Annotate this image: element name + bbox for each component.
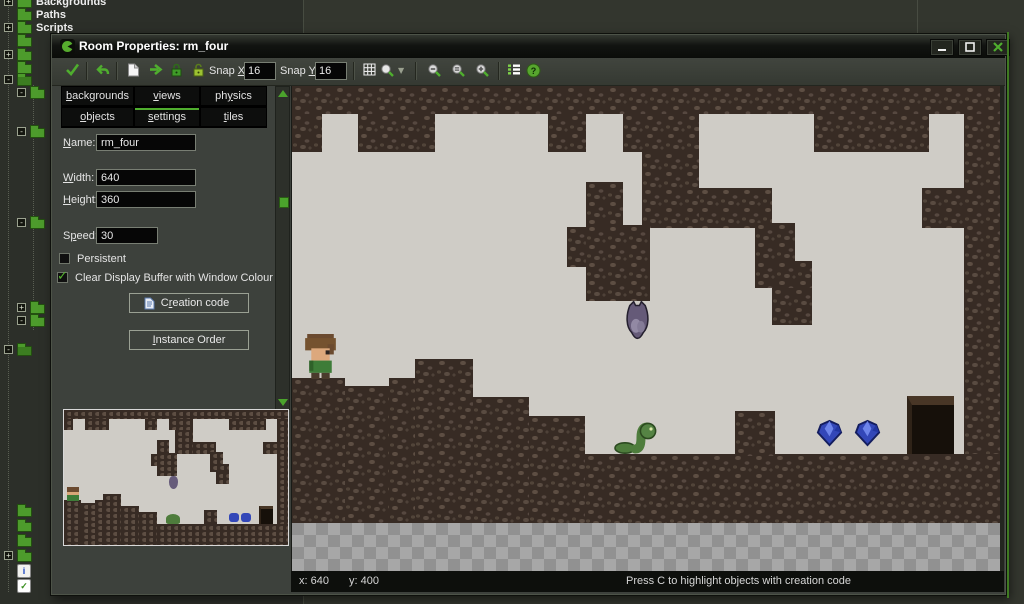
wall-tile-block <box>699 188 772 228</box>
creation-code-button[interactable]: Creation code <box>129 293 249 313</box>
snap-y-input[interactable] <box>315 62 347 80</box>
collapse-icon[interactable]: - <box>17 316 26 325</box>
toolbar-separator <box>498 62 499 80</box>
folder-icon <box>30 219 45 229</box>
tab-tiles[interactable]: tiles <box>200 107 267 127</box>
room-width-input[interactable] <box>96 169 196 186</box>
wall-tile-block <box>145 419 157 431</box>
snap-x-label: Snap X: <box>209 65 248 77</box>
tree-item-label[interactable]: Paths <box>36 9 66 22</box>
wall-tile-block <box>277 419 288 442</box>
door-tile <box>259 506 274 524</box>
global-settings-icon: ✓ <box>17 579 31 593</box>
wall-tile-block <box>95 500 103 545</box>
undo-button[interactable] <box>92 61 112 81</box>
zoom-reset-button[interactable] <box>448 61 468 81</box>
room-height-input[interactable] <box>96 191 196 208</box>
height-label: Height: <box>63 194 98 206</box>
snap-x-input[interactable] <box>244 62 276 80</box>
mouse-y-readout: y: 400 <box>349 575 379 587</box>
apply-changes-button[interactable] <box>62 61 82 81</box>
scrollbar-thumb[interactable] <box>279 197 289 208</box>
lock-closed-icon[interactable] <box>166 61 186 81</box>
tab-settings[interactable]: settings <box>134 107 200 127</box>
wall-tile-block <box>169 419 193 431</box>
toolbar-separator <box>415 62 416 80</box>
folder-icon <box>30 128 45 138</box>
toolbar-separator <box>86 62 87 80</box>
gamemaker-ide: +BackgroundsPaths+Scripts+----+--+i✓ Roo… <box>0 0 1024 604</box>
tree-item-label[interactable]: Backgrounds <box>36 0 106 9</box>
width-label: Width: <box>63 172 94 184</box>
zoom-in-button[interactable] <box>472 61 492 81</box>
snake-instance[interactable] <box>613 422 659 454</box>
wall-tile-block <box>81 503 95 545</box>
folder-icon <box>17 537 32 547</box>
statusbar-hint: Press C to highlight objects with creati… <box>626 575 851 587</box>
collapse-icon[interactable]: - <box>17 88 26 97</box>
wall-tile-block <box>772 288 812 325</box>
gamemaker-icon <box>60 39 75 54</box>
folder-icon <box>17 552 32 562</box>
room-properties-window: Room Properties: rm_four <box>50 33 1007 596</box>
shift-instances-button[interactable] <box>145 61 165 81</box>
wall-tile-block <box>529 416 585 523</box>
workspace-divider <box>917 0 918 33</box>
wall-tile-block <box>64 410 288 419</box>
wall-tile-block <box>358 114 435 152</box>
room-speed-input[interactable] <box>96 227 158 244</box>
wall-tile-block <box>157 440 169 454</box>
wall-tile-block <box>586 182 623 227</box>
collapse-icon[interactable]: - <box>17 218 26 227</box>
name-label: Name: <box>63 137 95 149</box>
creation-code-label: Creation code <box>161 297 230 309</box>
wall-tile-block <box>292 86 1000 114</box>
maximize-button[interactable] <box>958 39 982 56</box>
gem-instance <box>241 513 250 522</box>
wall-tile-block <box>204 510 217 524</box>
wall-tile-block <box>473 397 529 523</box>
grid-toggle-button[interactable] <box>359 61 379 81</box>
window-title: Room Properties: rm_four <box>79 39 228 53</box>
folder-icon <box>30 89 45 99</box>
minimap-room-view <box>64 410 288 545</box>
folder-icon <box>17 507 32 517</box>
wall-tile-block <box>735 411 775 456</box>
door-tile[interactable] <box>907 396 954 454</box>
folder-icon <box>17 24 32 34</box>
scroll-down-arrow[interactable] <box>278 399 288 406</box>
wall-tile-block <box>755 223 795 261</box>
lock-open-icon[interactable] <box>188 61 208 81</box>
expand-icon[interactable]: + <box>4 50 13 59</box>
folder-icon <box>17 11 32 21</box>
wall-tile-block <box>389 378 415 523</box>
mouse-x-readout: x: 640 <box>299 575 329 587</box>
wall-tile-block <box>623 114 699 152</box>
bat-instance <box>169 476 178 489</box>
clear-buffer-checkbox[interactable]: ✓ <box>57 272 68 283</box>
expand-icon[interactable]: + <box>4 0 13 6</box>
outside-room-checker <box>292 523 1000 571</box>
room-tab-bar: backgrounds views physics objects settin… <box>61 86 267 128</box>
wall-tile-block <box>567 227 586 267</box>
zoom-out-button[interactable] <box>424 61 444 81</box>
toolbar-separator <box>116 62 117 80</box>
wall-tile-block <box>292 114 322 152</box>
wall-tile-block <box>139 512 157 545</box>
wall-tile-block <box>814 114 929 152</box>
wall-tile-block <box>755 261 812 288</box>
svg-text:?: ? <box>530 66 536 76</box>
game-information-icon: i <box>17 564 31 578</box>
zoom-menu-button[interactable] <box>377 61 397 81</box>
folder-icon <box>17 37 32 47</box>
instance-list-button[interactable] <box>504 61 524 81</box>
room-canvas[interactable] <box>292 86 1000 523</box>
folder-icon <box>17 76 32 86</box>
wall-tile-block <box>210 452 223 464</box>
checkmark-icon: ✓ <box>57 269 68 284</box>
instance-order-label: Instance Order <box>153 334 226 346</box>
wall-tile-block <box>548 114 586 152</box>
zoom-menu-caret[interactable]: ▼ <box>398 66 404 75</box>
persistent-label: Persistent <box>77 253 126 265</box>
wall-tile-block <box>175 430 193 453</box>
tree-row[interactable]: Paths <box>0 9 220 22</box>
tab-backgrounds[interactable]: backgrounds <box>61 86 134 106</box>
tree-row[interactable]: +Backgrounds <box>0 0 220 9</box>
wall-tile-block <box>415 359 473 523</box>
room-minimap[interactable] <box>63 409 289 546</box>
collapse-icon[interactable]: - <box>4 345 13 354</box>
wall-tile-block <box>292 378 345 523</box>
minimize-button[interactable] <box>930 39 954 56</box>
wall-tile-block <box>103 494 121 545</box>
new-room-button[interactable] <box>123 61 143 81</box>
wall-tile-block <box>642 152 699 228</box>
clear-buffer-label: Clear Display Buffer with Window Colour <box>75 272 273 284</box>
wall-tile-block <box>585 454 1000 523</box>
wall-tile-block <box>277 442 288 525</box>
instance-order-button[interactable]: Instance Order <box>129 330 249 350</box>
room-statusbar: x: 640 y: 400 Press C to highlight objec… <box>291 571 1004 592</box>
gem-instance <box>229 513 238 522</box>
wall-tile-block <box>263 442 276 454</box>
folder-icon <box>30 304 45 314</box>
wall-tile-block <box>345 386 389 523</box>
folder-icon <box>17 51 32 61</box>
wall-tile-block <box>229 419 265 431</box>
room-canvas-area[interactable] <box>291 86 1004 571</box>
snap-y-label: Snap Y: <box>280 65 318 77</box>
bat-instance[interactable] <box>624 299 651 341</box>
player-instance[interactable] <box>303 334 338 379</box>
panel-scrollbar[interactable] <box>275 86 290 410</box>
wall-tile-block <box>64 419 73 431</box>
window-titlebar[interactable]: Room Properties: rm_four <box>52 35 1005 58</box>
toolbar-separator <box>353 62 354 80</box>
expand-icon[interactable]: + <box>4 23 13 32</box>
tab-views[interactable]: views <box>134 86 200 106</box>
close-button[interactable] <box>986 39 1010 56</box>
tab-physics[interactable]: physics <box>200 86 267 106</box>
wall-tile-block <box>216 472 229 483</box>
wall-tile-block <box>210 464 228 472</box>
gem-instance[interactable] <box>853 419 882 448</box>
tab-objects[interactable]: objects <box>61 107 134 127</box>
wall-tile-block <box>922 188 964 228</box>
folder-icon <box>30 317 45 327</box>
folder-icon <box>17 0 32 8</box>
expand-icon[interactable]: + <box>17 303 26 312</box>
wall-tile-block <box>64 500 81 545</box>
wall-tile-block <box>157 524 288 545</box>
code-document-icon <box>144 297 155 316</box>
help-button[interactable]: ? <box>523 61 543 81</box>
wall-tile-block <box>964 114 1000 188</box>
wall-tile-block <box>85 419 109 431</box>
expand-icon[interactable]: + <box>4 551 13 560</box>
room-name-input[interactable] <box>96 134 196 151</box>
wall-tile-block <box>964 188 1000 456</box>
player-instance <box>67 487 78 501</box>
speed-label: Speed: <box>63 230 98 242</box>
wall-tile-block <box>121 506 139 545</box>
collapse-icon[interactable]: - <box>4 75 13 84</box>
snake-instance <box>166 514 181 524</box>
tree-connector-line <box>33 85 34 330</box>
folder-icon <box>17 346 32 356</box>
folder-icon <box>17 522 32 532</box>
room-toolbar: Snap X: Snap Y: ▼ <box>52 58 1005 86</box>
scroll-up-arrow[interactable] <box>278 90 288 97</box>
collapse-icon[interactable]: - <box>17 127 26 136</box>
wall-tile-block <box>586 225 650 301</box>
gem-instance[interactable] <box>815 419 844 448</box>
persistent-checkbox[interactable] <box>59 253 70 264</box>
wall-tile-block <box>157 453 177 476</box>
